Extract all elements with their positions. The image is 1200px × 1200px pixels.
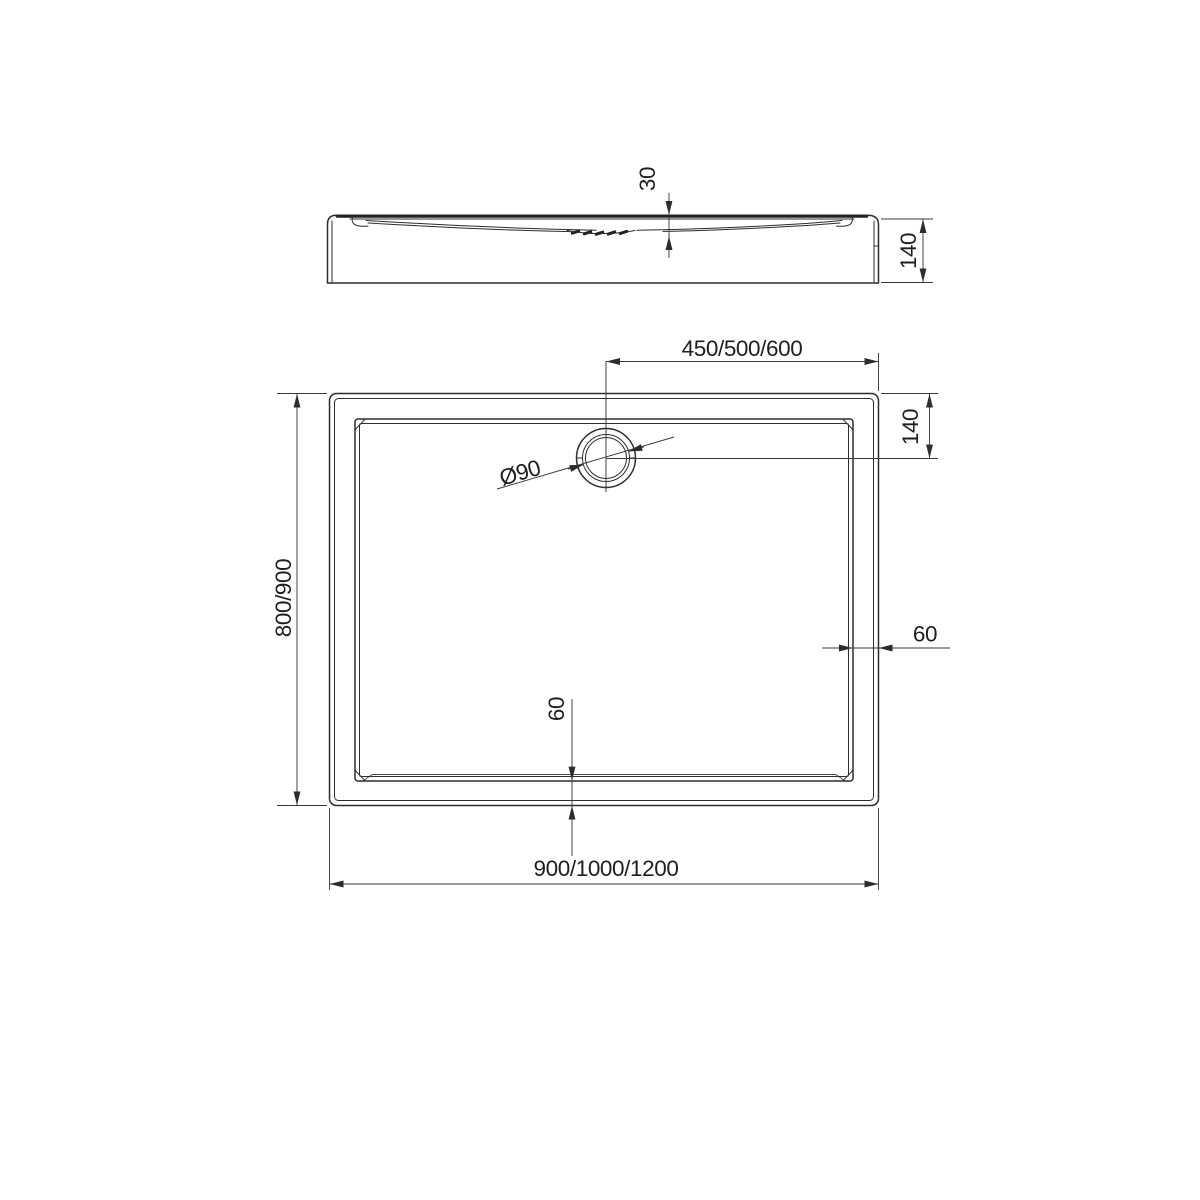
dim-rim-width-right-label: 60 <box>913 622 937 647</box>
drawing-canvas: 30 140 <box>0 0 1200 1200</box>
dim-total-height-label: 140 <box>896 233 921 269</box>
page-background <box>0 0 1200 1200</box>
dim-length-options-label: 800/900 <box>271 559 296 638</box>
shower-tray-technical-drawing: 30 140 <box>0 0 1200 1200</box>
dim-rim-width-bottom-label: 60 <box>544 697 569 721</box>
dim-basin-depth-label: 30 <box>635 167 660 191</box>
dim-drain-offset-vertical-label: 140 <box>898 409 923 445</box>
dim-drain-offset-horizontal-label: 450/500/600 <box>682 336 803 361</box>
dim-width-options-label: 900/1000/1200 <box>534 856 679 881</box>
